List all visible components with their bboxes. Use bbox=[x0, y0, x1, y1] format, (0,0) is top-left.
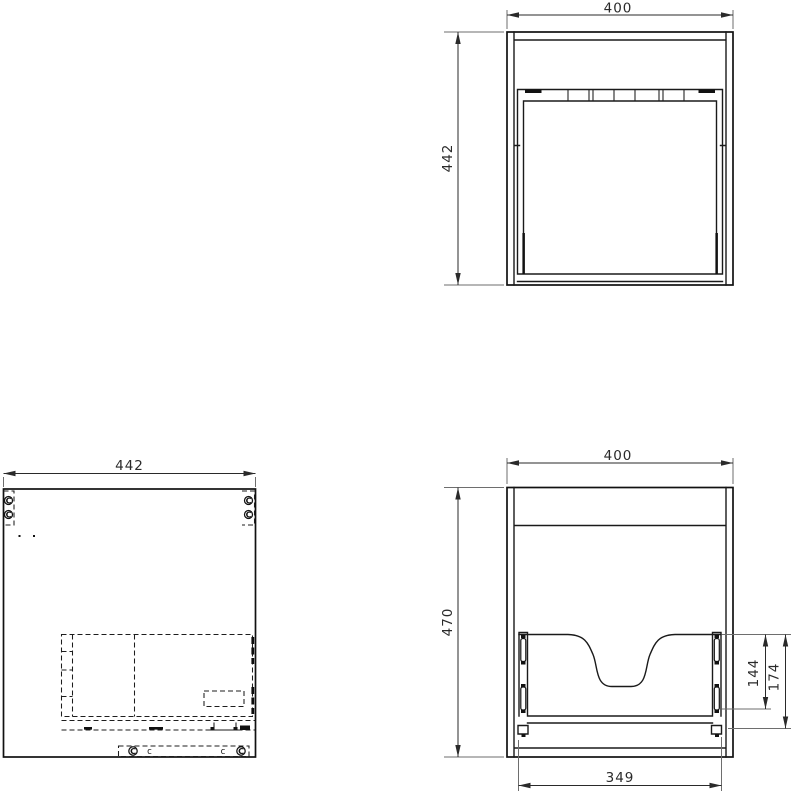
drill-mark bbox=[33, 535, 35, 537]
drawing-canvas: 400 442 C C C C C C c c bbox=[0, 0, 800, 800]
cam-lock-label: C bbox=[6, 511, 12, 520]
dimension-arrow bbox=[783, 717, 788, 729]
cam-lock-label: C bbox=[238, 747, 244, 756]
dimension-arrow bbox=[783, 635, 788, 647]
dimension-arrow bbox=[507, 12, 519, 17]
dimension-arrow bbox=[455, 745, 460, 757]
cam-lock-label: C bbox=[6, 497, 12, 506]
dimension-arrow bbox=[721, 12, 733, 17]
slide-slot bbox=[714, 687, 719, 710]
dimension-arrow bbox=[763, 697, 768, 709]
top-view: 400 442 bbox=[440, 1, 733, 286]
slide-slot bbox=[714, 639, 719, 662]
top-view-panel-lines bbox=[514, 32, 726, 285]
dimension-label-cutout-height: 144 bbox=[746, 659, 762, 688]
top-view-carcase-outline bbox=[507, 32, 733, 285]
fitting-bracket bbox=[214, 723, 236, 730]
side-view-hidden-lines bbox=[4, 491, 256, 757]
dimension-label-top-width: 400 bbox=[604, 1, 633, 17]
technical-drawing: 400 442 C C C C C C c c bbox=[0, 0, 800, 800]
dimension-arrow bbox=[519, 783, 531, 788]
dimension-arrow bbox=[710, 783, 722, 788]
top-view-corner-brackets bbox=[522, 90, 718, 275]
cam-lock-label: C bbox=[130, 747, 136, 756]
slide-slot bbox=[521, 639, 526, 662]
dimension-label-side-depth: 442 bbox=[115, 458, 144, 474]
dimension-arrow bbox=[721, 460, 733, 465]
cam-lock-label: C bbox=[246, 497, 252, 506]
side-view: C C C C C C c c 442 bbox=[4, 458, 256, 757]
dimension-label-front-height: 470 bbox=[440, 608, 456, 637]
dimension-label-top-depth: 442 bbox=[440, 144, 456, 173]
dimension-arrow bbox=[4, 471, 16, 476]
screw-label: c bbox=[221, 747, 226, 757]
dimension-arrow bbox=[455, 273, 460, 285]
screw-label: c bbox=[147, 747, 152, 757]
dimension-label-drawer-width: 349 bbox=[606, 770, 635, 786]
dimension-arrow bbox=[455, 488, 460, 500]
dimension-arrow bbox=[507, 460, 519, 465]
drawer-back-cutout bbox=[519, 635, 721, 687]
dimension-arrow bbox=[763, 635, 768, 647]
drawer-slides bbox=[518, 633, 722, 735]
drill-mark bbox=[19, 535, 21, 537]
dimension-arrow bbox=[455, 32, 460, 44]
cam-lock-label: C bbox=[246, 511, 252, 520]
dimension-arrow bbox=[244, 471, 256, 476]
front-view: 400 470 144 174 349 bbox=[440, 448, 791, 791]
slide-slot bbox=[521, 687, 526, 710]
top-view-dowel-dividers bbox=[568, 90, 684, 102]
dimension-label-front-width: 400 bbox=[604, 448, 633, 464]
dimension-label-cutout-total: 174 bbox=[767, 663, 783, 692]
